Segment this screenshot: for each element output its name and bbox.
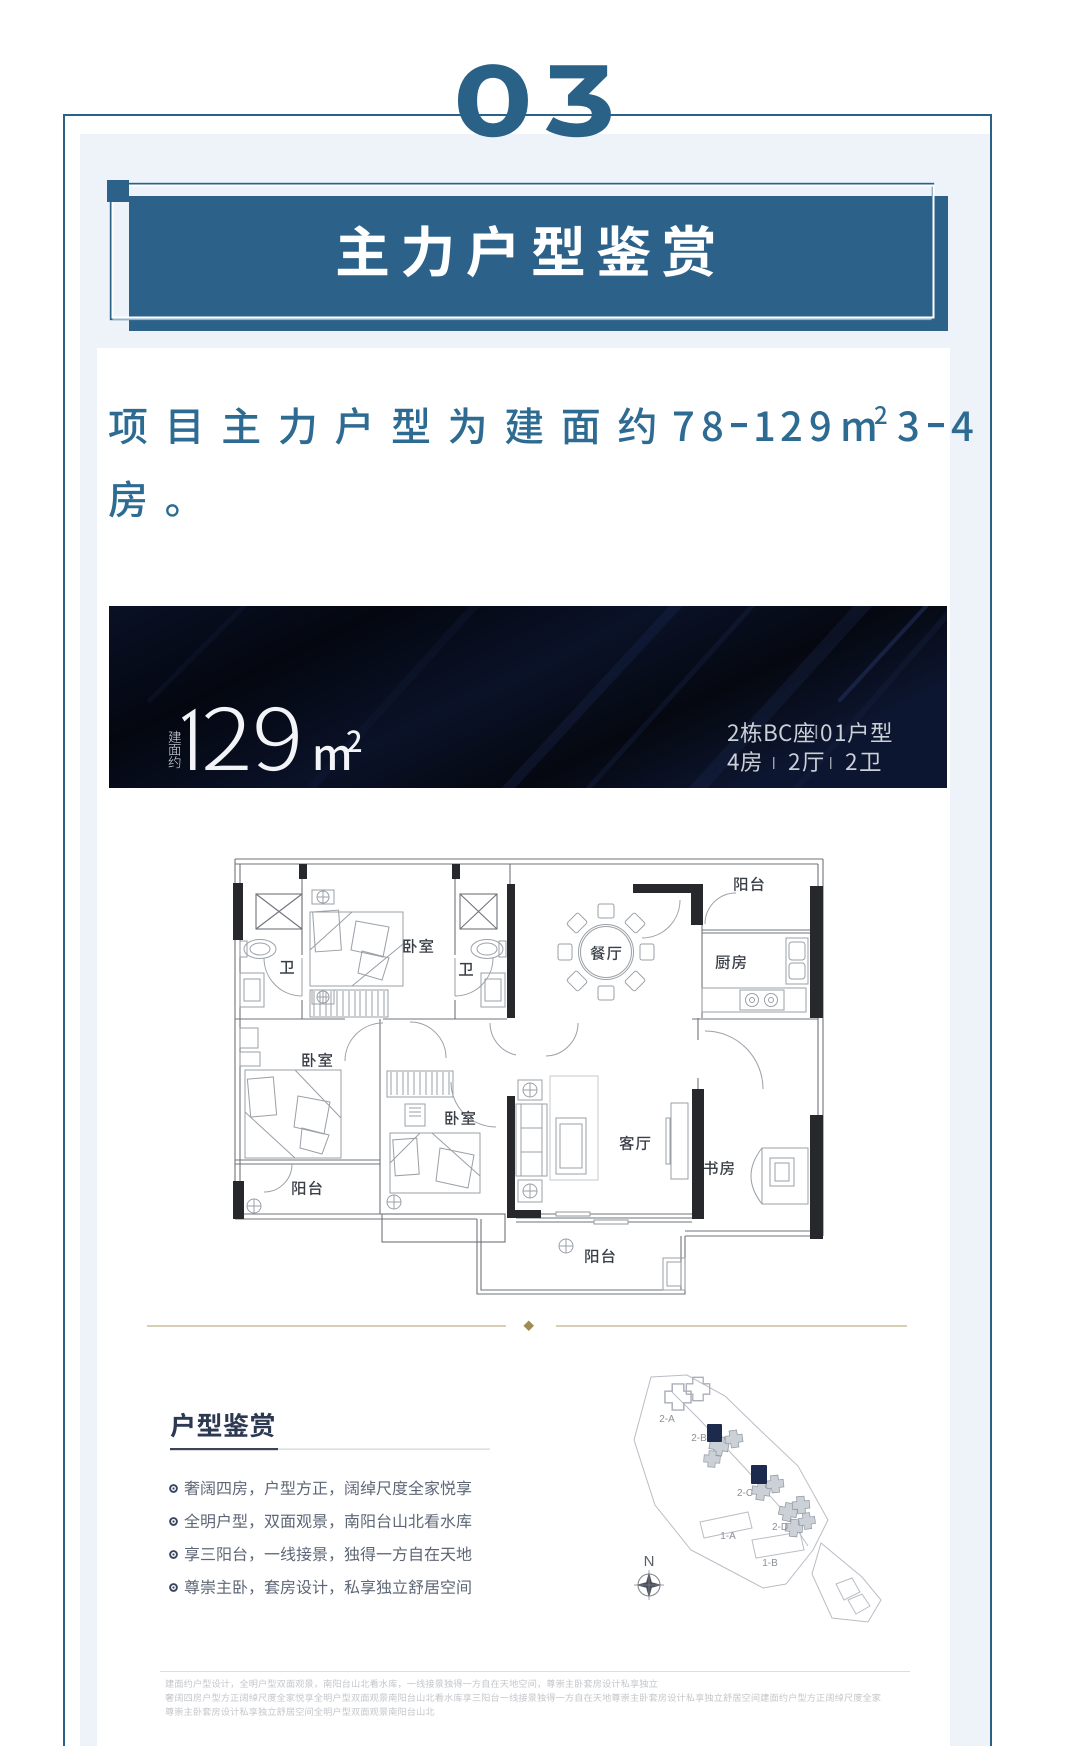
svg-text:2-D: 2-D [772,1522,788,1533]
svg-text:1-B: 1-B [762,1558,778,1569]
svg-text:N: N [644,1553,655,1570]
svg-text:1-A: 1-A [720,1531,736,1542]
svg-text:2-B: 2-B [691,1433,707,1444]
svg-text:2-C: 2-C [737,1488,753,1499]
svg-text:2-A: 2-A [659,1414,675,1425]
